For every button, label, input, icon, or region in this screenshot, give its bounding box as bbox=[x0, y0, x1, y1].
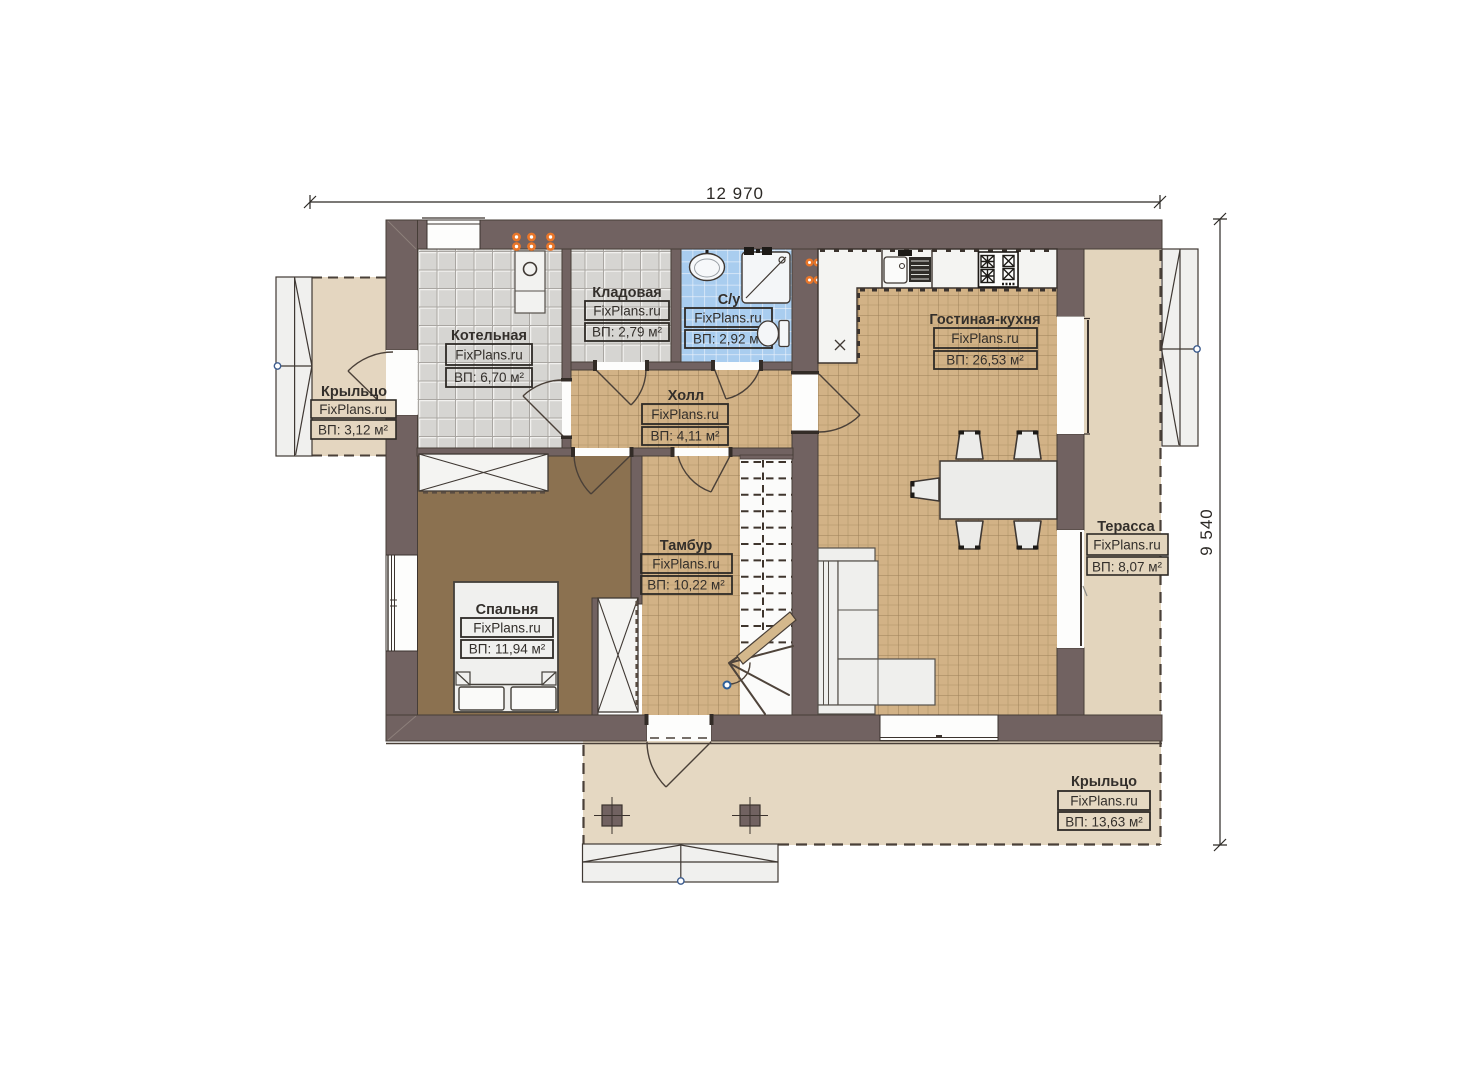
svg-text:Крыльцо: Крыльцо bbox=[1071, 774, 1137, 790]
svg-text:Гостиная-кухня: Гостиная-кухня bbox=[929, 312, 1040, 328]
svg-text:FixPlans.ru: FixPlans.ru bbox=[1070, 794, 1138, 809]
svg-text:Терасса: Терасса bbox=[1097, 519, 1155, 535]
svg-text:FixPlans.ru: FixPlans.ru bbox=[694, 311, 762, 326]
svg-text:Кладовая: Кладовая bbox=[592, 285, 661, 301]
svg-text:ВП: 4,11 м²: ВП: 4,11 м² bbox=[650, 429, 720, 444]
svg-text:ВП: 8,07 м²: ВП: 8,07 м² bbox=[1092, 560, 1163, 575]
svg-text:Крыльцо: Крыльцо bbox=[321, 384, 387, 400]
svg-text:ВП: 2,79 м²: ВП: 2,79 м² bbox=[592, 325, 663, 340]
svg-text:FixPlans.ru: FixPlans.ru bbox=[319, 402, 387, 417]
svg-text:FixPlans.ru: FixPlans.ru bbox=[951, 331, 1019, 346]
svg-text:Спальня: Спальня bbox=[476, 602, 539, 618]
svg-text:С/у: С/у bbox=[718, 292, 741, 308]
svg-text:9 540: 9 540 bbox=[1197, 508, 1216, 556]
svg-text:FixPlans.ru: FixPlans.ru bbox=[652, 557, 720, 572]
svg-text:FixPlans.ru: FixPlans.ru bbox=[1093, 538, 1161, 553]
svg-text:ВП: 6,70 м²: ВП: 6,70 м² bbox=[454, 370, 525, 385]
svg-text:FixPlans.ru: FixPlans.ru bbox=[651, 407, 719, 422]
svg-text:ВП: 11,94 м²: ВП: 11,94 м² bbox=[469, 642, 546, 657]
svg-text:ВП: 26,53 м²: ВП: 26,53 м² bbox=[946, 353, 1024, 368]
svg-text:ВП: 13,63 м²: ВП: 13,63 м² bbox=[1065, 815, 1143, 830]
svg-text:Котельная: Котельная bbox=[451, 328, 527, 344]
svg-text:FixPlans.ru: FixPlans.ru bbox=[593, 304, 661, 319]
svg-text:12 970: 12 970 bbox=[706, 184, 764, 203]
svg-text:ВП: 3,12 м²: ВП: 3,12 м² bbox=[318, 423, 389, 438]
svg-text:Холл: Холл bbox=[668, 388, 704, 404]
svg-text:ВП: 2,92 м²: ВП: 2,92 м² bbox=[693, 332, 764, 347]
svg-text:FixPlans.ru: FixPlans.ru bbox=[473, 621, 541, 636]
svg-text:Тамбур: Тамбур bbox=[660, 538, 713, 554]
svg-text:ВП: 10,22 м²: ВП: 10,22 м² bbox=[647, 578, 725, 593]
svg-text:FixPlans.ru: FixPlans.ru bbox=[455, 348, 523, 363]
